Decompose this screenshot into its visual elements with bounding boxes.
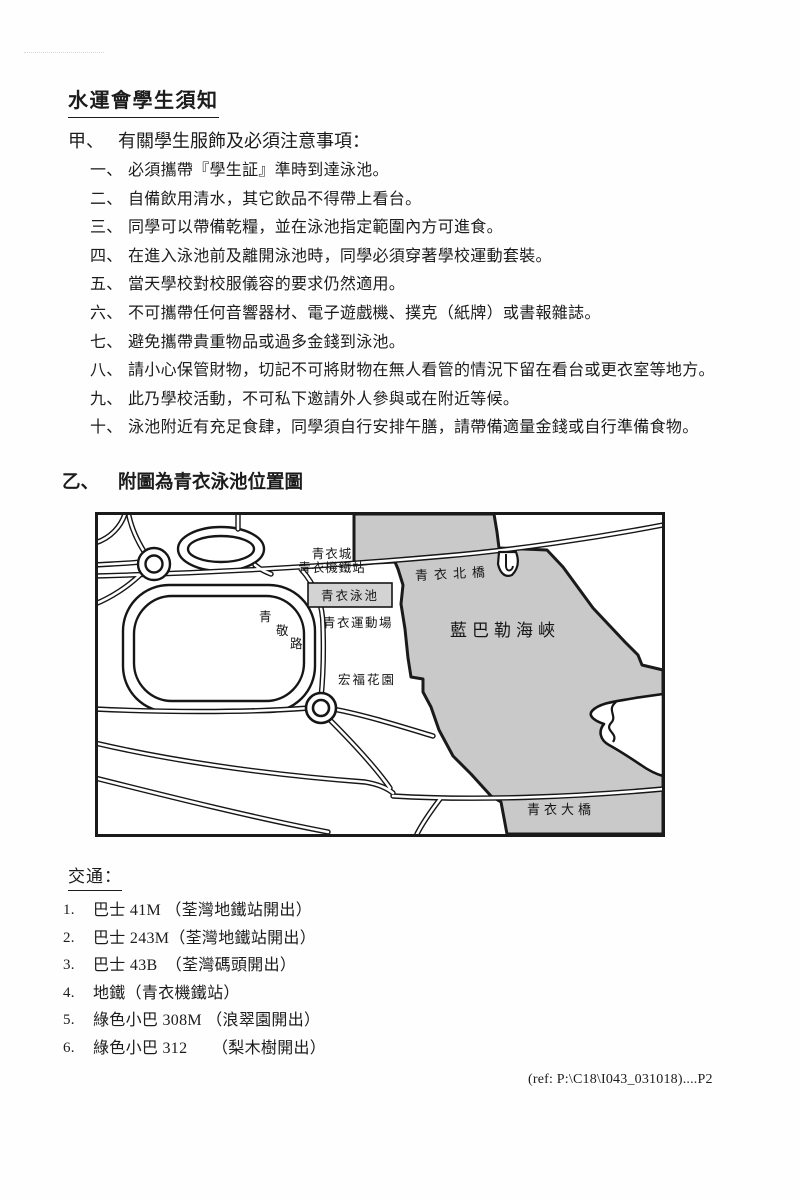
map-label-road-char1: 青 [259, 610, 272, 624]
list-item: 八、請小心保管財物，切記不可將財物在無人看管的情況下留在看台或更衣室等地方。 [90, 361, 780, 380]
list-item: 七、避免攜帶貴重物品或過多金錢到泳池。 [90, 333, 780, 352]
list-item: 九、此乃學校活動，不可私下邀請外人參與或在附近等候。 [90, 390, 780, 409]
oval-loop-outer [178, 527, 264, 571]
list-item: 6.綠色小巴 312 （梨木樹開出） [63, 1039, 663, 1059]
map-label-pool: 青衣泳池 [321, 588, 379, 603]
map-label-city: 青衣城 [312, 546, 353, 561]
roundabout-inner [313, 700, 329, 716]
transport-list: 1.巴士 41M （荃灣地鐵站開出） 2.巴士 243M（荃灣地鐵站開出） 3.… [63, 901, 663, 1067]
list-item: 3.巴士 43B （荃灣碼頭開出） [63, 956, 663, 976]
map-label-channel: 藍巴勒海峽 [450, 621, 560, 640]
section-a-title: 有關學生服飾及必須注意事項： [118, 127, 370, 153]
scan-noise [24, 44, 104, 53]
section-b-title: 附圖為青衣泳池位置圖 [118, 468, 303, 494]
section-b-heading: 乙、 附圖為青衣泳池位置圖 [62, 468, 303, 494]
list-item: 一、必須攜帶『學生証』準時到達泳池。 [90, 161, 780, 180]
pier-notch [498, 552, 518, 576]
list-item: 二、自備飲用清水，其它飲品不得帶上看台。 [90, 190, 780, 209]
list-item: 十、泳池附近有充足食肆，同學須自行安排午膳，請帶備適量金錢或自行準備食物。 [90, 418, 780, 437]
list-item: 5.綠色小巴 308M （浪翠園開出） [63, 1011, 663, 1031]
list-item: 四、在進入泳池前及離開泳池時，同學必須穿著學校運動套裝。 [90, 247, 780, 266]
transport-heading: 交通： [68, 862, 122, 891]
location-map: 青衣城 青衣機鐵站 青衣北橋 青衣泳池 青衣運動場 青 敬 路 宏福花園 藍巴勒… [95, 512, 665, 837]
footer-reference: (ref: P:\C18\I043_031018)....P2 [528, 1072, 713, 1088]
page-title: 水運會學生須知 [68, 84, 219, 118]
document-page: 水運會學生須知 甲、 有關學生服飾及必須注意事項： 一、必須攜帶『學生証』準時到… [0, 0, 800, 1200]
list-item: 三、同學可以帶備乾糧，並在泳池指定範圍內方可進食。 [90, 218, 780, 237]
map-label-road-char2: 敬 [276, 624, 289, 638]
map-label-garden: 宏福花園 [338, 672, 396, 687]
map-label-road-char3: 路 [290, 636, 303, 651]
list-item: 1.巴士 41M （荃灣地鐵站開出） [63, 901, 663, 921]
map-drawing: 青衣城 青衣機鐵站 青衣北橋 青衣泳池 青衣運動場 青 敬 路 宏福花園 藍巴勒… [95, 512, 665, 837]
junction-ring-inner [146, 556, 163, 573]
rules-list: 一、必須攜帶『學生証』準時到達泳池。 二、自備飲用清水，其它飲品不得帶上看台。 … [90, 161, 780, 447]
list-item: 4.地鐵（青衣機鐵站） [63, 984, 663, 1004]
section-a-marker: 甲、 [68, 127, 118, 153]
list-item: 五、當天學校對校服儀容的要求仍然適用。 [90, 275, 780, 294]
section-a-heading: 甲、 有關學生服飾及必須注意事項： [68, 127, 370, 153]
road-loop-outer [123, 585, 315, 712]
map-label-station: 青衣機鐵站 [298, 560, 366, 575]
map-label-south-bridge: 青衣大橋 [527, 802, 595, 817]
section-b-marker: 乙、 [62, 468, 118, 494]
list-item: 2.巴士 243M（荃灣地鐵站開出） [63, 929, 663, 949]
list-item: 六、不可攜帶任何音響器材、電子遊戲機、撲克（紙牌）或書報雜誌。 [90, 304, 780, 323]
map-label-sports-ground: 青衣運動場 [323, 615, 393, 630]
